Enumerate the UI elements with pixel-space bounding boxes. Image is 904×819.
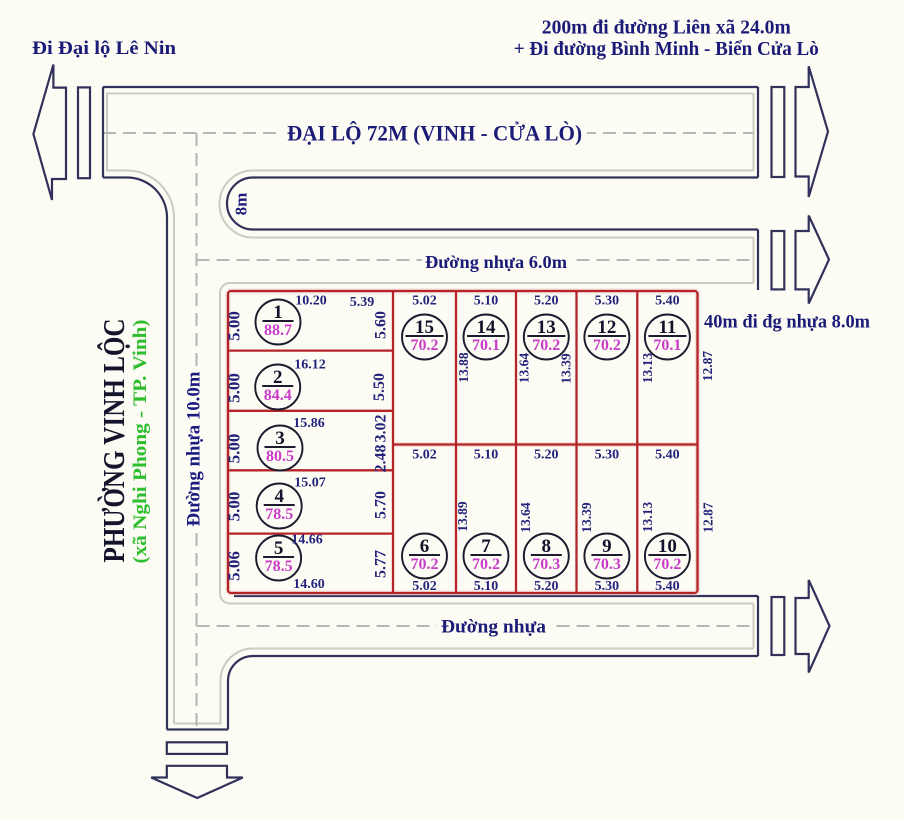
svg-text:6: 6: [420, 536, 430, 557]
svg-text:ĐẠI LỘ 72M (VINH - CỬA LÒ): ĐẠI LỘ 72M (VINH - CỬA LÒ): [287, 121, 582, 146]
svg-text:200m đi đường Liên xã 24.0m: 200m đi đường Liên xã 24.0m: [542, 17, 791, 39]
svg-text:12.87: 12.87: [701, 502, 716, 533]
svg-text:10: 10: [658, 536, 677, 557]
svg-text:5.50: 5.50: [371, 373, 388, 401]
svg-text:40m đi đg nhựa 8.0m: 40m đi đg nhựa 8.0m: [704, 312, 870, 333]
svg-text:2.48: 2.48: [373, 445, 390, 473]
svg-text:8: 8: [542, 536, 552, 557]
svg-text:+ Đi đường Bình Minh - Biển Cử: + Đi đường Bình Minh - Biển Cửa Lò: [514, 38, 819, 60]
svg-text:5.00: 5.00: [225, 434, 244, 464]
svg-text:3.02: 3.02: [373, 415, 390, 443]
svg-text:5.40: 5.40: [655, 294, 680, 309]
svg-text:5.20: 5.20: [534, 448, 559, 463]
svg-text:70.1: 70.1: [653, 337, 681, 354]
svg-text:13.39: 13.39: [559, 353, 574, 384]
svg-text:2: 2: [273, 367, 283, 388]
svg-text:78.5: 78.5: [265, 558, 293, 575]
svg-text:(xã Nghi Phong - TP. Vinh): (xã Nghi Phong - TP. Vinh): [130, 320, 151, 564]
svg-text:70.2: 70.2: [593, 337, 621, 354]
svg-text:5.39: 5.39: [350, 295, 375, 310]
svg-text:5.40: 5.40: [655, 448, 680, 463]
svg-text:15: 15: [415, 317, 434, 338]
svg-text:70.3: 70.3: [532, 556, 560, 573]
svg-text:13.39: 13.39: [579, 502, 594, 533]
svg-text:13.89: 13.89: [455, 501, 470, 532]
svg-text:4: 4: [274, 486, 284, 507]
svg-text:84.4: 84.4: [264, 387, 292, 404]
svg-text:5.20: 5.20: [534, 294, 559, 309]
svg-text:5.60: 5.60: [373, 311, 390, 339]
svg-text:12.87: 12.87: [700, 351, 715, 382]
svg-text:5.02: 5.02: [412, 448, 437, 463]
svg-text:5.02: 5.02: [412, 579, 437, 594]
svg-text:5.02: 5.02: [412, 294, 437, 309]
svg-text:5.10: 5.10: [474, 294, 499, 309]
svg-text:9: 9: [602, 536, 612, 557]
svg-text:78.5: 78.5: [265, 506, 293, 523]
svg-text:80.5: 80.5: [266, 448, 294, 465]
svg-text:13.64: 13.64: [518, 502, 533, 533]
svg-text:5.77: 5.77: [373, 550, 390, 578]
svg-text:16.12: 16.12: [294, 358, 326, 373]
svg-text:14: 14: [477, 317, 497, 338]
svg-text:13: 13: [537, 317, 556, 338]
svg-text:11: 11: [658, 317, 676, 338]
svg-text:1: 1: [273, 302, 283, 323]
svg-text:5.70: 5.70: [373, 491, 390, 519]
svg-text:PHƯỜNG VINH LỘC: PHƯỜNG VINH LỘC: [96, 319, 131, 563]
svg-text:13.64: 13.64: [517, 353, 532, 384]
svg-text:70.2: 70.2: [411, 337, 439, 354]
svg-text:5.20: 5.20: [534, 579, 559, 594]
svg-text:5.10: 5.10: [474, 448, 499, 463]
svg-text:Đường nhựa: Đường nhựa: [441, 617, 547, 638]
svg-text:70.2: 70.2: [653, 556, 681, 573]
svg-text:5.40: 5.40: [655, 579, 680, 594]
svg-text:14.60: 14.60: [293, 577, 325, 592]
svg-text:5.30: 5.30: [595, 579, 620, 594]
svg-text:15.86: 15.86: [293, 416, 325, 431]
svg-text:13.13: 13.13: [640, 502, 655, 533]
svg-text:Đường nhựa 6.0m: Đường nhựa 6.0m: [425, 252, 567, 272]
svg-text:5.30: 5.30: [595, 448, 620, 463]
svg-text:8m: 8m: [232, 193, 251, 216]
svg-text:5: 5: [274, 538, 284, 559]
svg-text:13.13: 13.13: [640, 353, 655, 384]
svg-text:7: 7: [481, 536, 491, 557]
svg-text:Đi Đại lộ Lê Nin: Đi Đại lộ Lê Nin: [32, 38, 176, 59]
svg-text:Đường nhựa 10.0m: Đường nhựa 10.0m: [184, 371, 205, 526]
svg-text:5.30: 5.30: [595, 294, 620, 309]
svg-text:70.2: 70.2: [472, 556, 500, 573]
svg-text:15.07: 15.07: [294, 476, 326, 491]
svg-text:14.66: 14.66: [291, 533, 323, 548]
svg-text:3: 3: [275, 428, 285, 449]
svg-text:70.3: 70.3: [593, 556, 621, 573]
svg-text:5.00: 5.00: [225, 311, 244, 341]
svg-text:5.00: 5.00: [225, 492, 244, 522]
svg-text:70.2: 70.2: [532, 337, 560, 354]
svg-text:12: 12: [597, 317, 616, 338]
svg-text:70.2: 70.2: [411, 556, 439, 573]
svg-text:5.00: 5.00: [225, 373, 244, 403]
svg-text:13.88: 13.88: [456, 352, 471, 383]
svg-text:5.06: 5.06: [225, 551, 244, 581]
svg-text:88.7: 88.7: [264, 322, 292, 339]
svg-text:5.10: 5.10: [474, 579, 499, 594]
svg-text:70.1: 70.1: [472, 337, 500, 354]
svg-text:10.20: 10.20: [295, 294, 327, 309]
